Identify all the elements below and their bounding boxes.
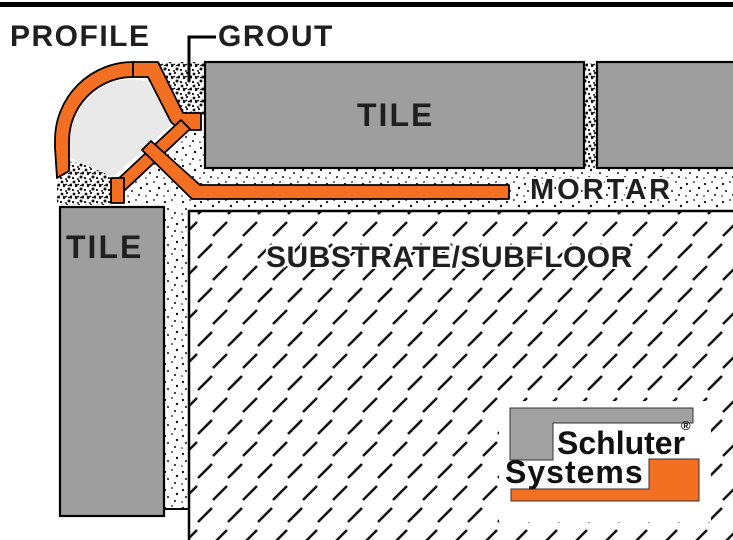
registered-trademark-symbol: ® [681, 419, 691, 432]
tile-side-label: TILE [66, 231, 143, 263]
grout-label: GROUT [218, 22, 334, 52]
tile-top-right [597, 62, 733, 168]
profile-wall-foot [111, 178, 124, 203]
top-border-line [0, 2, 733, 7]
substrate-label: SUBSTRATE/SUBFLOOR [266, 243, 633, 273]
tile-top-label: TILE [357, 99, 434, 131]
mortar-label: MORTAR [530, 176, 673, 205]
mortar-layer-wall [164, 207, 188, 509]
installation-diagram: PROFILE GROUT TILE TILE MORTAR SUBSTRATE… [0, 0, 733, 540]
profile-label: PROFILE [10, 22, 151, 52]
logo-wordmark-line2: Systems [505, 456, 644, 488]
